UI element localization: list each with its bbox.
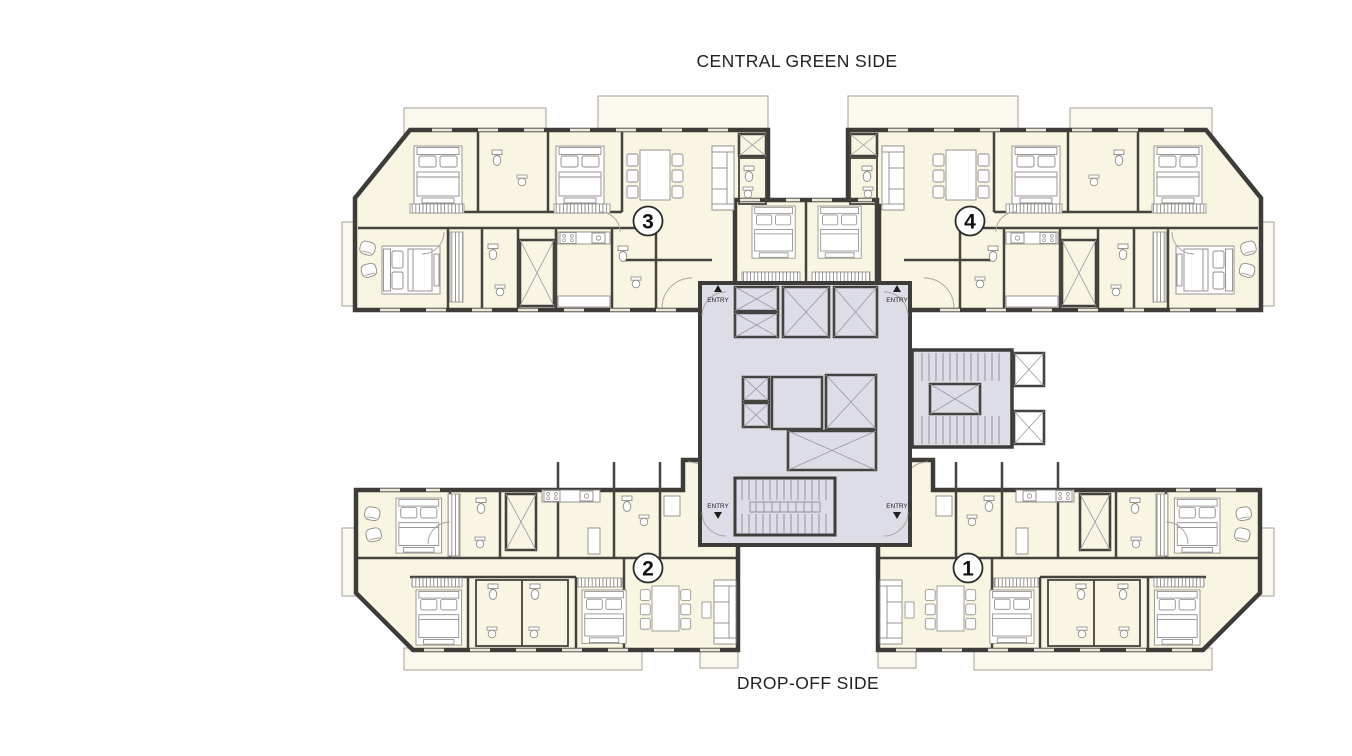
- balcony: [598, 96, 768, 132]
- entry-label: ENTRY: [707, 503, 729, 510]
- main-staircase: [735, 478, 835, 535]
- unit-number: 3: [642, 211, 654, 234]
- central-green-side-label: CENTRAL GREEN SIDE: [696, 51, 897, 71]
- unit-badge-2: 2: [634, 554, 663, 583]
- entry-label: ENTRY: [886, 503, 908, 510]
- unit-badge-1: 1: [954, 554, 983, 583]
- unit-number: 2: [642, 558, 654, 581]
- core: [700, 283, 910, 545]
- unit-number: 1: [962, 558, 974, 581]
- balcony: [848, 96, 1018, 132]
- unit-badge-4: 4: [956, 207, 985, 236]
- center-bedrooms: [740, 200, 872, 290]
- lift-lobby: [772, 377, 822, 429]
- floor-plan-page: ENTRY ENTRY ENTRY ENTRY 3 4 2: [0, 0, 1352, 756]
- floor-plan-canvas: ENTRY ENTRY ENTRY ENTRY 3 4 2: [0, 0, 1352, 756]
- entry-label: ENTRY: [707, 297, 729, 304]
- unit-number: 4: [964, 211, 976, 234]
- entry-label: ENTRY: [886, 297, 908, 304]
- drop-off-side-label: DROP-OFF SIDE: [737, 673, 879, 693]
- unit-badge-3: 3: [634, 207, 663, 236]
